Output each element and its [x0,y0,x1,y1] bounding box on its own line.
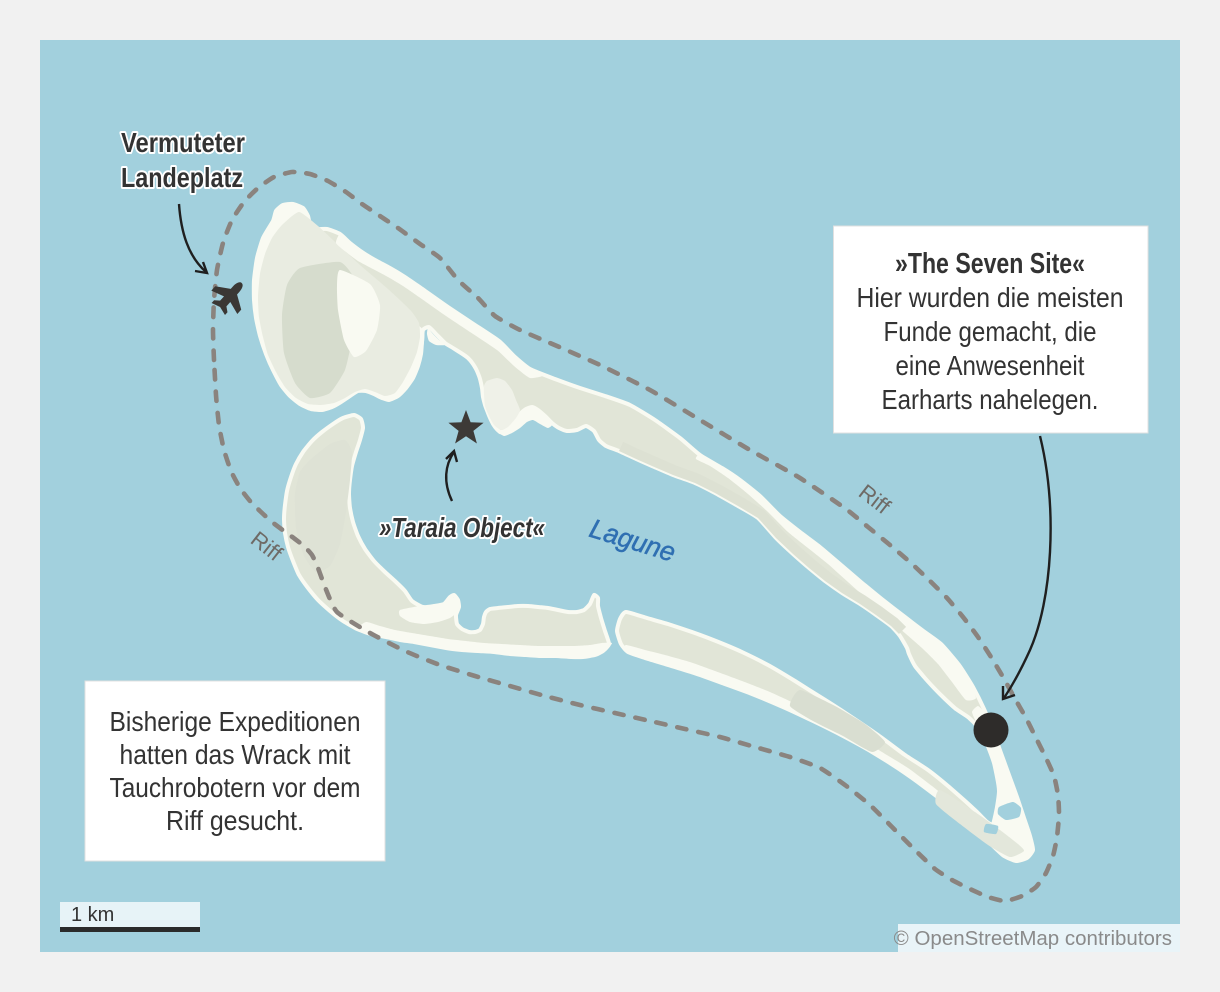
svg-text:Landeplatz: Landeplatz [121,162,243,193]
svg-text:© OpenStreetMap contributors: © OpenStreetMap contributors [894,927,1172,950]
svg-text:Earharts nahelegen.: Earharts nahelegen. [882,384,1099,415]
svg-text:Vermuteter: Vermuteter [121,127,245,158]
svg-text:Funde gemacht, die: Funde gemacht, die [884,316,1097,347]
svg-text:»Taraia Object«: »Taraia Object« [379,512,545,543]
svg-text:Tauchrobotern vor dem: Tauchrobotern vor dem [110,772,361,803]
svg-text:Hier wurden die meisten: Hier wurden die meisten [857,282,1124,313]
svg-text:Bisherige Expeditionen: Bisherige Expeditionen [110,706,361,737]
svg-text:1 km: 1 km [71,904,114,926]
svg-text:Riff gesucht.: Riff gesucht. [166,805,304,836]
svg-text:hatten das Wrack mit: hatten das Wrack mit [120,739,351,770]
svg-text:eine Anwesenheit: eine Anwesenheit [896,350,1085,381]
svg-text:»The Seven Site«: »The Seven Site« [895,248,1085,280]
